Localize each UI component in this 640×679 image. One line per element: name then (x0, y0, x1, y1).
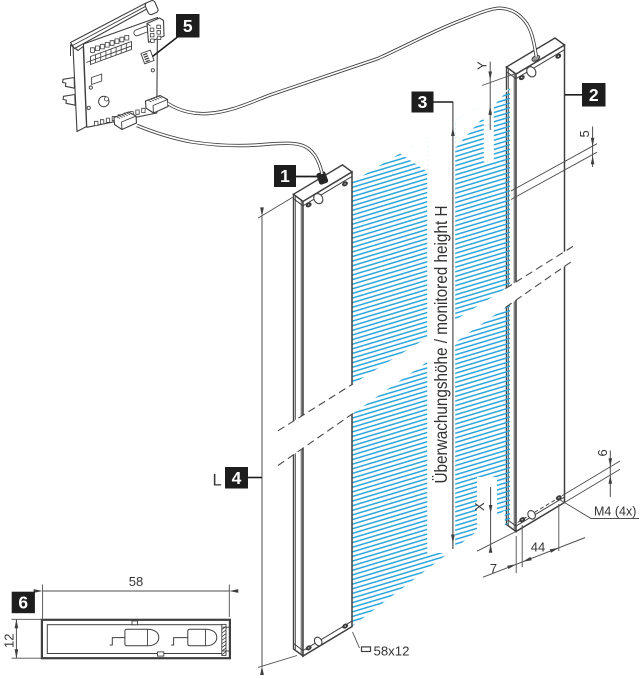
svg-text:12: 12 (2, 634, 17, 648)
svg-text:5: 5 (577, 130, 592, 137)
svg-text:44: 44 (531, 540, 545, 555)
svg-text:2: 2 (589, 85, 599, 105)
svg-text:X: X (472, 502, 487, 511)
svg-text:7: 7 (490, 561, 497, 576)
svg-text:Überwachungshöhe / monitored h: Überwachungshöhe / monitored height H (431, 206, 451, 484)
svg-text:1: 1 (280, 166, 290, 186)
svg-text:6: 6 (18, 593, 28, 613)
svg-text:Y: Y (475, 61, 490, 70)
svg-text:L: L (213, 472, 222, 490)
svg-text:4: 4 (232, 468, 242, 488)
svg-text:6: 6 (595, 449, 610, 456)
svg-text:58x12: 58x12 (374, 644, 410, 659)
svg-text:5: 5 (183, 16, 193, 36)
svg-text:58: 58 (129, 574, 143, 589)
svg-text:M4 (4x): M4 (4x) (594, 505, 636, 519)
svg-text:3: 3 (418, 92, 428, 112)
